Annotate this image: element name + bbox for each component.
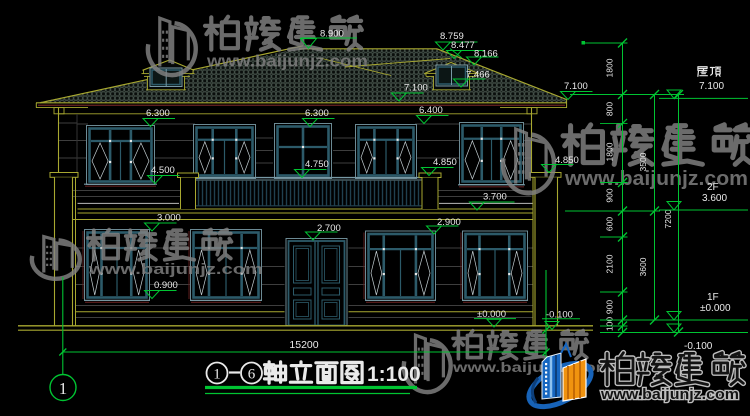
svg-text:www.baijunjz.com: www.baijunjz.com <box>564 168 748 190</box>
svg-text:4.500: 4.500 <box>151 165 175 176</box>
svg-text:-0.100: -0.100 <box>684 341 713 352</box>
svg-text:100: 100 <box>605 317 615 331</box>
svg-text:6.400: 6.400 <box>419 105 443 116</box>
svg-text:1800: 1800 <box>605 142 615 161</box>
svg-text:0.900: 0.900 <box>154 280 178 291</box>
svg-text:3600: 3600 <box>638 257 648 276</box>
svg-text:7.100: 7.100 <box>404 83 428 94</box>
svg-text:900: 900 <box>605 188 615 202</box>
svg-text:8.166: 8.166 <box>474 49 498 60</box>
svg-text:1:100: 1:100 <box>367 363 421 386</box>
svg-text:1800: 1800 <box>605 58 615 77</box>
svg-text:7.100: 7.100 <box>699 81 724 92</box>
svg-text:4.850: 4.850 <box>433 157 457 168</box>
svg-text:±0.000: ±0.000 <box>700 303 731 314</box>
svg-text:7.466: 7.466 <box>466 70 490 81</box>
svg-text:2F: 2F <box>707 182 719 193</box>
svg-text:4.850: 4.850 <box>555 155 579 166</box>
svg-text:2.900: 2.900 <box>437 217 461 228</box>
svg-text:7200: 7200 <box>663 209 673 228</box>
svg-text:4.750: 4.750 <box>305 159 329 170</box>
svg-text:3.700: 3.700 <box>483 192 507 203</box>
svg-text:800: 800 <box>605 102 615 116</box>
svg-text:3.600: 3.600 <box>702 193 727 204</box>
svg-text:6: 6 <box>248 367 256 383</box>
svg-text:2.700: 2.700 <box>317 223 341 234</box>
svg-text:600: 600 <box>605 217 615 231</box>
svg-text:3.000: 3.000 <box>157 213 181 224</box>
svg-text:900: 900 <box>605 300 615 314</box>
svg-text:1: 1 <box>213 367 221 383</box>
svg-text:3500: 3500 <box>638 152 648 171</box>
svg-text:1F: 1F <box>707 292 719 303</box>
svg-text:8.477: 8.477 <box>451 40 475 51</box>
svg-text:6.300: 6.300 <box>146 108 170 119</box>
svg-text:www.baijunjz.com: www.baijunjz.com <box>206 51 368 70</box>
svg-text:2100: 2100 <box>605 254 615 273</box>
svg-text:6.300: 6.300 <box>305 108 329 119</box>
svg-text:www.baijunjz.com: www.baijunjz.com <box>600 387 739 403</box>
svg-text:www.baijunjz.com: www.baijunjz.com <box>88 261 263 278</box>
svg-text:7.100: 7.100 <box>564 81 588 92</box>
svg-text:15200: 15200 <box>289 339 318 351</box>
svg-text:1: 1 <box>59 379 68 398</box>
